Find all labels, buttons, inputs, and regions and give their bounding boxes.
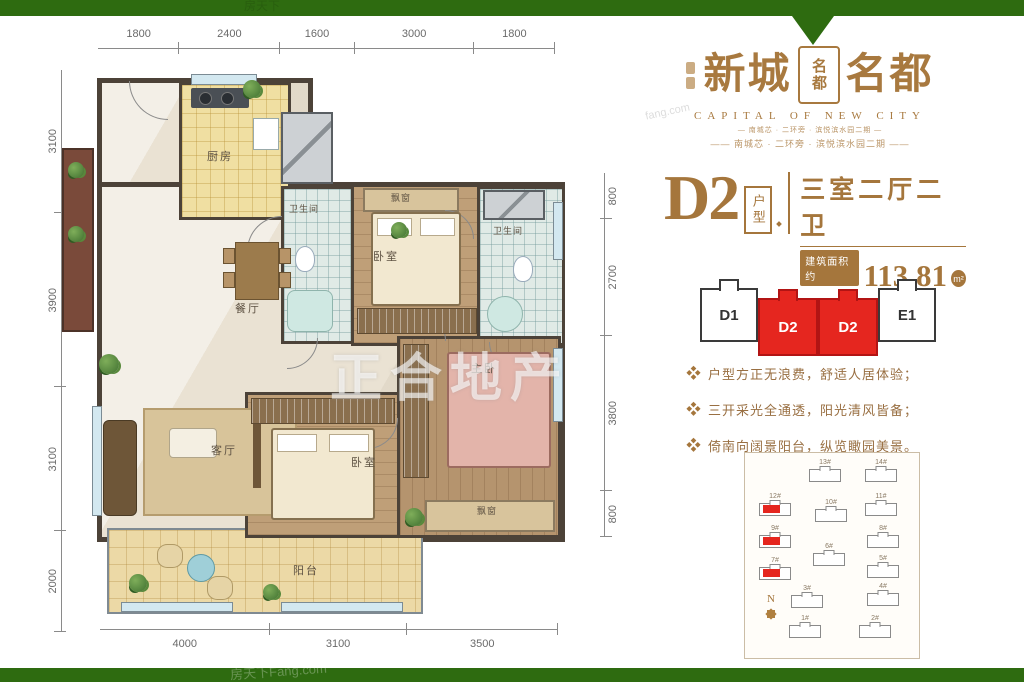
site-building-3: 3#	[791, 595, 823, 608]
sofa	[103, 420, 137, 516]
dimension-label: 3000	[402, 28, 426, 40]
bedroom-top-label: 卧室	[373, 248, 399, 264]
dimension-label: 1800	[126, 28, 150, 40]
window	[553, 348, 563, 422]
site-building-10: 10#	[815, 509, 847, 522]
dimension-segment: 4000	[100, 622, 270, 650]
dimension-label: 3100	[47, 447, 59, 471]
building-number: 6#	[825, 543, 833, 550]
kitchen-sink	[253, 118, 279, 150]
site-building-1: 1#	[789, 625, 821, 638]
building-number: 3#	[803, 585, 811, 592]
dimension-label: 1600	[305, 28, 329, 40]
burner	[199, 92, 212, 105]
chair	[279, 248, 291, 264]
dimension-segment: 2000	[40, 531, 66, 632]
compass-north-label: N	[757, 593, 785, 605]
bottom-green-bar	[0, 668, 1024, 682]
building-glyph	[867, 565, 899, 578]
toilet	[295, 246, 315, 272]
bedroom-mid-label: 卧室	[351, 454, 377, 470]
dimension-label: 3500	[470, 638, 494, 650]
feature-item: 户型方正无浪费，舒适人居体验；	[688, 364, 980, 383]
site-building-13: 13#	[809, 469, 841, 482]
wardrobe	[403, 344, 429, 478]
chair	[223, 272, 235, 288]
dimension-segment: 3000	[355, 28, 474, 54]
dimension-segment: 3100	[40, 387, 66, 530]
unit-type-label: 户型	[749, 194, 768, 226]
strip-unit-label: D1	[719, 307, 738, 324]
plant	[243, 80, 261, 98]
bed	[271, 428, 375, 520]
dimension-segment: 2400	[179, 28, 279, 54]
building-glyph	[759, 503, 791, 516]
building-number: 8#	[879, 525, 887, 532]
dimension-label: 1800	[502, 28, 526, 40]
feature-text: 户型方正无浪费，舒适人居体验；	[708, 364, 918, 383]
plant	[129, 574, 147, 592]
building-number: 1#	[801, 615, 809, 622]
dimension-segment: 800	[600, 173, 626, 219]
window	[92, 406, 102, 516]
dimension-label: 3100	[47, 129, 59, 153]
balcony-chair	[157, 544, 183, 568]
brand-name-right: 名都	[846, 54, 934, 96]
dimension-segment: 3100	[270, 622, 407, 650]
plant	[405, 508, 423, 526]
plant	[391, 222, 407, 238]
balcony-chair	[207, 576, 233, 600]
feature-item: 三开采光全通透，阳光清风皆备；	[688, 400, 980, 419]
dimension-label: 3100	[326, 638, 350, 650]
dot-icon	[776, 221, 782, 227]
vertical-divider	[788, 172, 790, 234]
building-number: 5#	[879, 555, 887, 562]
strip-unit-label: D2	[778, 319, 797, 336]
dimension-segment: 2700	[600, 219, 626, 336]
bay-bottom-label: 飘窗	[477, 504, 497, 517]
building-number: 4#	[879, 583, 887, 590]
building-glyph	[867, 535, 899, 548]
dining-label: 餐厅	[235, 300, 261, 316]
dimension-segment: 1600	[280, 28, 355, 54]
dimension-label: 800	[607, 505, 619, 523]
diamond-bullet-icon	[686, 402, 702, 418]
site-building-2: 2#	[859, 625, 891, 638]
building-glyph	[865, 469, 897, 482]
strip-unit-tab	[838, 289, 858, 301]
building-glyph	[815, 509, 847, 522]
feature-text: 三开采光全通透，阳光清风皆备；	[708, 400, 918, 419]
top-green-bar	[0, 0, 1024, 16]
diamond-bullet-icon	[686, 366, 702, 382]
bathtub	[287, 290, 333, 332]
building-glyph	[867, 593, 899, 606]
brand-seal-icon: 名都	[798, 46, 840, 104]
strip-unit-d2: D2	[818, 298, 878, 356]
shower-basin	[487, 296, 523, 332]
master-bed	[447, 352, 551, 468]
building-glyph	[809, 469, 841, 482]
brand-name-left: 新城	[703, 54, 791, 96]
plant	[68, 162, 84, 178]
site-building-4: 4#	[867, 593, 899, 606]
toilet	[513, 256, 533, 282]
strip-unit-tab	[719, 279, 739, 291]
compass-star-icon	[764, 607, 778, 621]
building-number: 12#	[769, 493, 781, 500]
flyer-canvas: 18002400160030001800 400031003500 310039…	[0, 0, 1024, 682]
brand-logo: 新城 名都 名都 CAPITAL OF NEW CITY — 南城芯 · 二环旁…	[660, 46, 960, 150]
chair	[279, 272, 291, 288]
dimension-segment: 3800	[600, 336, 626, 491]
stair-core	[281, 112, 333, 184]
site-building-6: 6#	[813, 553, 845, 566]
building-glyph	[759, 535, 791, 548]
dimension-label: 2700	[607, 265, 619, 289]
plant	[263, 584, 279, 600]
site-building-9: 9#	[759, 535, 791, 548]
dimension-segment: 1800	[98, 28, 179, 54]
unit-code: D2	[664, 170, 738, 226]
living-label: 客厅	[211, 442, 237, 458]
bay-top-label: 飘窗	[391, 191, 411, 204]
dimensions-top: 18002400160030001800	[98, 28, 555, 54]
site-building-11: 11#	[865, 503, 897, 516]
master-label: 主卧	[471, 360, 497, 376]
site-building-8: 8#	[867, 535, 899, 548]
brand-subtitle: CAPITAL OF NEW CITY	[660, 110, 960, 122]
floor-plan: 厨房 卫生间 飘窗 卧室 卫生间 餐厅 客厅 卧室 主卧 飘窗 阳台	[95, 76, 563, 614]
building-glyph	[759, 567, 791, 580]
building-number: 2#	[871, 615, 879, 622]
wardrobe	[251, 398, 395, 424]
strip-unit-tab	[778, 289, 798, 301]
dimensions-bottom: 400031003500	[100, 622, 558, 650]
strip-unit-d1: D1	[700, 288, 758, 342]
building-number: 11#	[875, 493, 886, 500]
building-glyph	[789, 625, 821, 638]
strip-unit-d2: D2	[758, 298, 818, 356]
brand-tagline: —— 南城芯 · 二环旁 · 滨悦滨水园二期 ——	[660, 137, 960, 150]
dimension-label: 3900	[47, 288, 59, 312]
building-number: 9#	[771, 525, 779, 532]
top-green-triangle	[792, 16, 834, 45]
balcony-label: 阳台	[293, 562, 319, 578]
building-number: 10#	[825, 499, 837, 506]
building-number: 14#	[875, 459, 887, 466]
kitchen-label: 厨房	[207, 148, 233, 164]
building-glyph	[865, 503, 897, 516]
dimensions-right: 80027003800800	[600, 173, 626, 537]
dimension-label: 2000	[47, 569, 59, 593]
site-building-7: 7#	[759, 567, 791, 580]
building-glyph	[813, 553, 845, 566]
balcony-window	[121, 602, 233, 612]
site-plan: N 13#14#12#10#11#9#8#7#6#5#3#4#1#2#	[744, 452, 920, 659]
bath2-label: 卫生间	[493, 224, 523, 237]
unit-type-box: 户型	[744, 186, 772, 234]
bath1-label: 卫生间	[289, 202, 319, 215]
building-number: 13#	[819, 459, 831, 466]
building-glyph	[791, 595, 823, 608]
dimension-segment: 3500	[407, 622, 558, 650]
strip-unit-tab	[897, 279, 917, 291]
burner	[221, 92, 234, 105]
seal-stamp-icon	[686, 62, 695, 89]
wardrobe	[357, 308, 477, 334]
brand-seal-text: 名都	[808, 58, 829, 92]
coffee-table	[169, 428, 217, 458]
area-unit-icon: m²	[951, 270, 966, 287]
building-glyph	[859, 625, 891, 638]
brand-tagline-small: — 南城芯 · 二环旁 · 滨悦滨水园二期 —	[660, 125, 960, 135]
strip-unit-e1: E1	[878, 288, 936, 342]
balcony-window	[281, 602, 403, 612]
strip-unit-label: D2	[838, 319, 857, 336]
dimension-segment: 800	[600, 491, 626, 537]
window	[553, 202, 563, 260]
site-building-12: 12#	[759, 503, 791, 516]
unit-layout: 三室二厅二卫	[800, 170, 966, 242]
diamond-bullet-icon	[686, 438, 702, 454]
dining-table	[235, 242, 279, 300]
compass: N	[757, 593, 785, 621]
dimension-label: 3800	[607, 401, 619, 425]
chair	[223, 248, 235, 264]
plant	[68, 226, 84, 242]
dimension-segment: 1800	[474, 28, 555, 54]
floor-strip-diagram: D1D2D2E1	[700, 262, 934, 354]
elevator-core	[483, 190, 545, 220]
building-number: 7#	[771, 557, 779, 564]
strip-unit-label: E1	[898, 307, 916, 324]
site-building-5: 5#	[867, 565, 899, 578]
dimension-label: 4000	[173, 638, 197, 650]
dimension-label: 800	[607, 187, 619, 205]
dimension-label: 2400	[217, 28, 241, 40]
site-building-14: 14#	[865, 469, 897, 482]
plant	[99, 354, 119, 374]
